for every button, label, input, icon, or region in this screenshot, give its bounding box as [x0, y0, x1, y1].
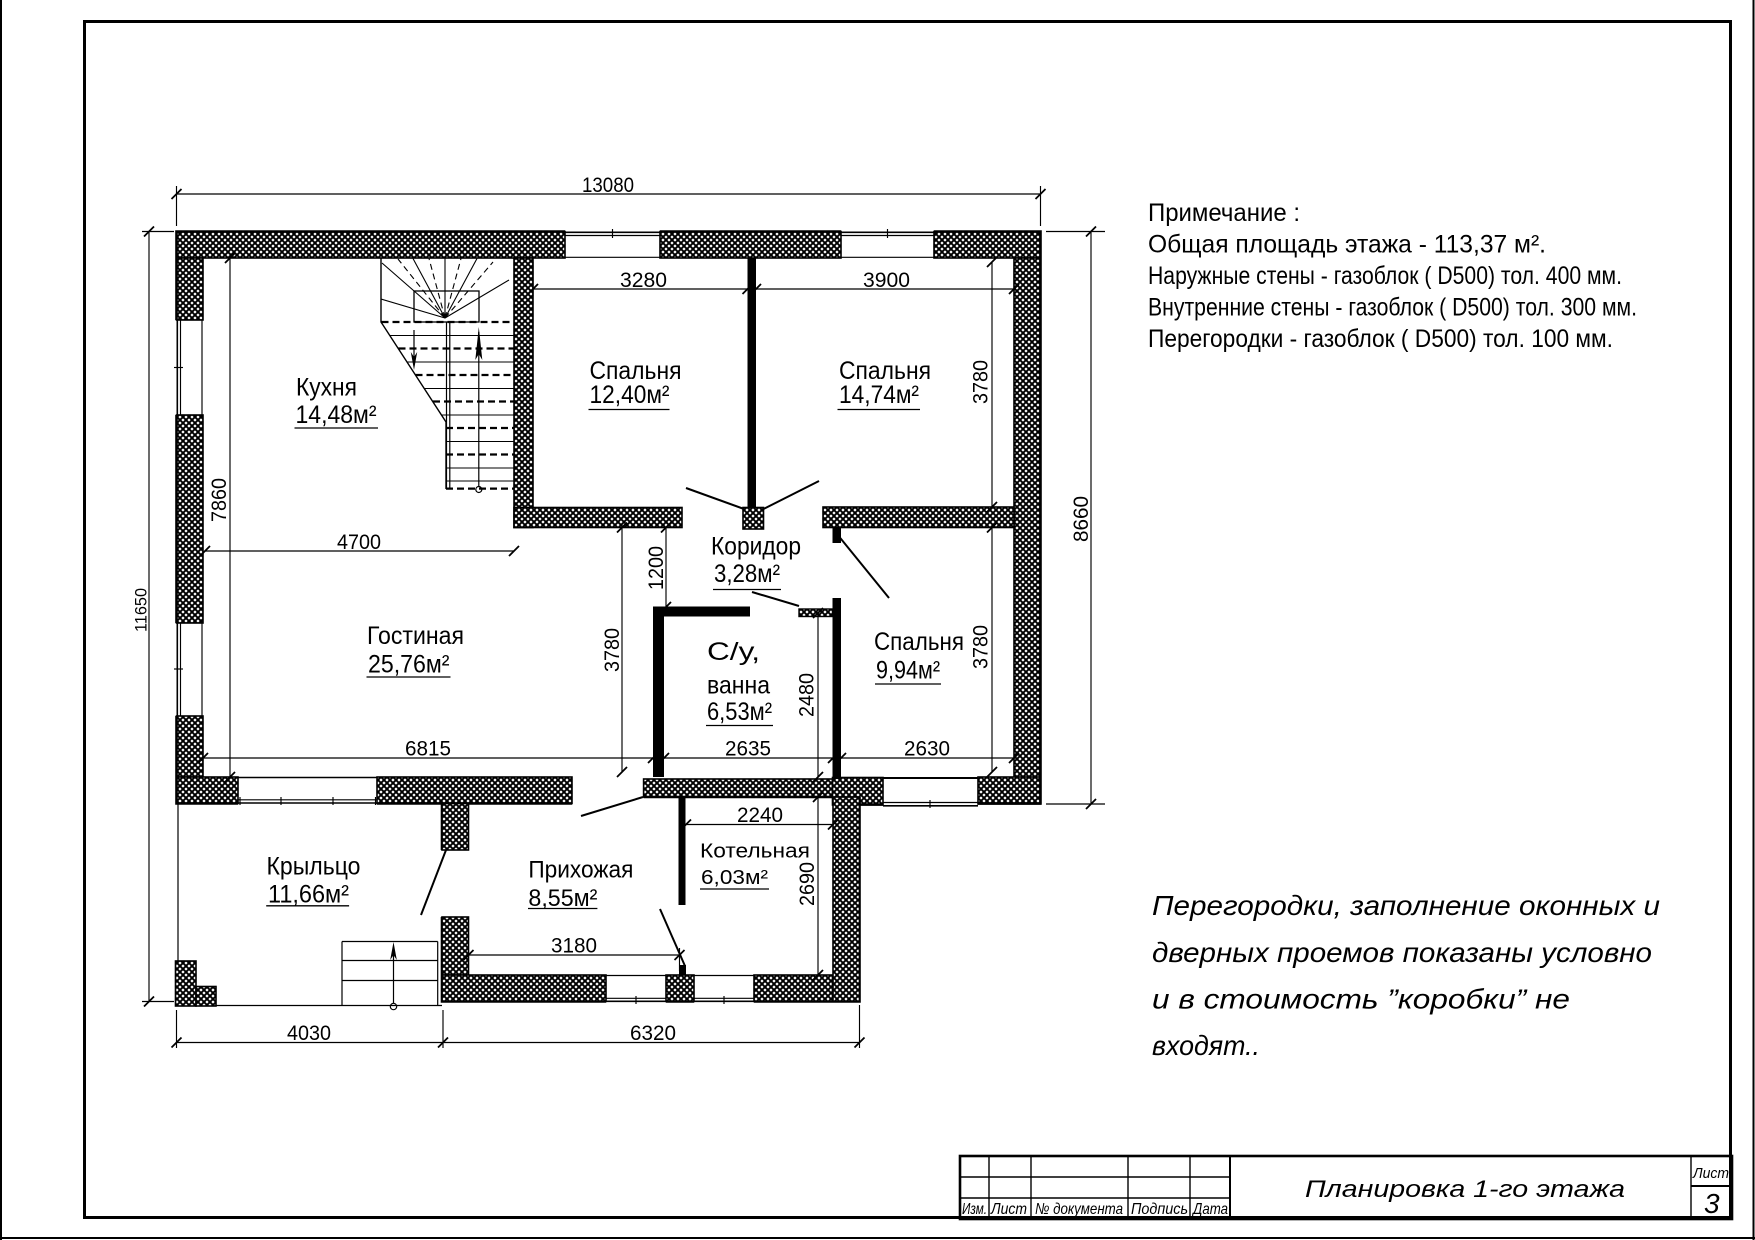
svg-text:12,40м²: 12,40м²: [590, 381, 670, 409]
svg-text:6320: 6320: [630, 1022, 676, 1045]
svg-text:6,53м²: 6,53м²: [707, 698, 772, 726]
svg-text:2480: 2480: [796, 673, 819, 717]
svg-text:7860: 7860: [208, 478, 231, 522]
svg-text:Коридор: Коридор: [711, 533, 801, 561]
svg-text:13080: 13080: [582, 174, 634, 197]
svg-text:Наружные стены - газоблок ( D5: Наружные стены - газоблок ( D500) тол. 4…: [1148, 262, 1622, 290]
svg-text:3,28м²: 3,28м²: [714, 560, 780, 588]
svg-text:3180: 3180: [551, 935, 597, 958]
svg-text:дверных проемов показаны ус: дверных проемов показаны условно: [1152, 937, 1652, 968]
svg-text:Спальня: Спальня: [874, 628, 964, 656]
svg-text:25,76м²: 25,76м²: [368, 651, 450, 679]
svg-text:Гостиная: Гостиная: [367, 622, 464, 650]
svg-text:6,03м²: 6,03м²: [701, 867, 768, 889]
svg-text:8660: 8660: [1070, 496, 1093, 542]
svg-text:Перегородки, заполнение окон: Перегородки, заполнение оконных и: [1152, 890, 1660, 921]
svg-text:Примечание :: Примечание :: [1148, 199, 1300, 227]
svg-text:4030: 4030: [287, 1022, 331, 1045]
svg-text:Общая площадь этажа - 113,37 м: Общая площадь этажа - 113,37 м².: [1148, 231, 1546, 259]
svg-text:Перегородки - газоблок ( D500): Перегородки - газоблок ( D500) тол. 100 …: [1148, 325, 1613, 353]
svg-text:Котельная: Котельная: [700, 841, 810, 863]
svg-text:3900: 3900: [863, 269, 910, 292]
svg-text:и в стоимость ”коробки” не: и в стоимость ”коробки” не: [1152, 984, 1570, 1015]
svg-text:Кухня: Кухня: [296, 374, 357, 402]
svg-text:2690: 2690: [796, 862, 819, 906]
svg-text:ванна: ванна: [707, 672, 770, 700]
svg-text:Лист: Лист: [990, 1201, 1027, 1218]
svg-text:2240: 2240: [737, 804, 783, 827]
svg-text:Дата: Дата: [1191, 1201, 1228, 1218]
svg-text:Планировка 1-го этажа: Планировка 1-го этажа: [1305, 1176, 1625, 1203]
svg-text:Внутренние стены - газоблок (: Внутренние стены - газоблок ( D500) тол.…: [1148, 294, 1637, 322]
svg-text:4700: 4700: [337, 531, 381, 554]
svg-text:8,55м²: 8,55м²: [528, 885, 597, 912]
svg-text:11650: 11650: [132, 588, 151, 632]
svg-text:2630: 2630: [904, 738, 950, 761]
svg-text:11,66м²: 11,66м²: [268, 881, 349, 909]
svg-text:1200: 1200: [645, 546, 668, 590]
svg-text:Прихожая: Прихожая: [528, 857, 633, 884]
svg-text:3280: 3280: [620, 269, 667, 292]
svg-text:3780: 3780: [970, 625, 993, 669]
svg-text:С/у,: С/у,: [707, 638, 760, 666]
svg-text:Лист: Лист: [1692, 1165, 1729, 1182]
svg-text:входят..: входят..: [1152, 1030, 1260, 1061]
svg-text:2635: 2635: [725, 738, 771, 761]
svg-text:3780: 3780: [970, 360, 993, 404]
svg-text:Подпись: Подпись: [1131, 1201, 1188, 1218]
svg-text:Крыльцо: Крыльцо: [267, 853, 361, 881]
svg-text:9,94м²: 9,94м²: [876, 657, 940, 685]
svg-text:14,48м²: 14,48м²: [296, 401, 377, 429]
svg-text:№ документа: № документа: [1035, 1201, 1123, 1218]
svg-text:14,74м²: 14,74м²: [839, 381, 919, 409]
svg-text:3780: 3780: [601, 628, 624, 672]
svg-text:6815: 6815: [405, 738, 451, 761]
svg-text:Изм.: Изм.: [962, 1201, 987, 1218]
svg-text:3: 3: [1704, 1188, 1720, 1219]
